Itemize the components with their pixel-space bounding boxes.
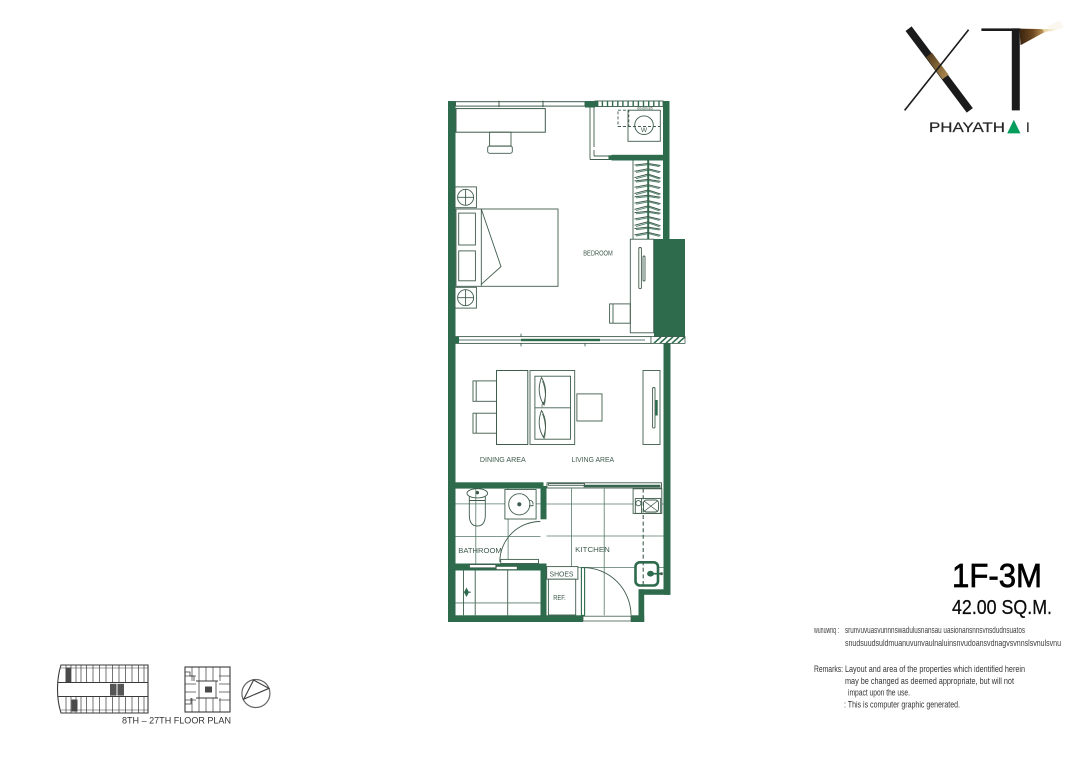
svg-text:Remarks:: Remarks: (814, 664, 843, 675)
svg-text:BATHROOM: BATHROOM (458, 546, 502, 555)
svg-text:DINING AREA: DINING AREA (480, 455, 527, 464)
svg-text:REF.: REF. (553, 595, 566, 602)
svg-text:I: I (1026, 120, 1030, 135)
svg-text:W: W (641, 127, 648, 134)
svg-text:srunvuvuasvunnnswadulusnansau: srunvuvuasvunnnswadulusnansau uasionansn… (845, 624, 1025, 635)
svg-text:60x60x85: 60x60x85 (637, 107, 653, 111)
svg-text:LIVING AREA: LIVING AREA (571, 455, 615, 464)
svg-text:BEDROOM: BEDROOM (583, 248, 613, 257)
svg-text:may be changed as deemed appro: may be changed as deemed appropriate, bu… (845, 676, 1014, 687)
svg-text:Layout and area of the propert: Layout and area of the properties which … (845, 664, 1025, 675)
svg-text:impact upon the use.: impact upon the use. (848, 688, 910, 699)
svg-text:KITCHEN: KITCHEN (575, 545, 610, 554)
svg-text:1F-3M: 1F-3M (952, 558, 1042, 595)
svg-text:SHOES: SHOES (550, 572, 574, 579)
svg-text:PHAYATH: PHAYATH (929, 120, 1005, 135)
svg-text:8TH – 27TH FLOOR PLAN: 8TH – 27TH FLOOR PLAN (122, 715, 231, 726)
svg-text:snudsuudsuldmuanuvunvaulnaluin: snudsuudsuldmuanuvunvaulnaluinsnvudoansv… (845, 637, 1061, 648)
svg-text:wunuwnq :: wunuwnq : (813, 624, 839, 635)
svg-text:: This is computer graphic gen: : This is computer graphic generated. (844, 699, 960, 710)
svg-text:42.00 SQ.M.: 42.00 SQ.M. (952, 596, 1052, 619)
